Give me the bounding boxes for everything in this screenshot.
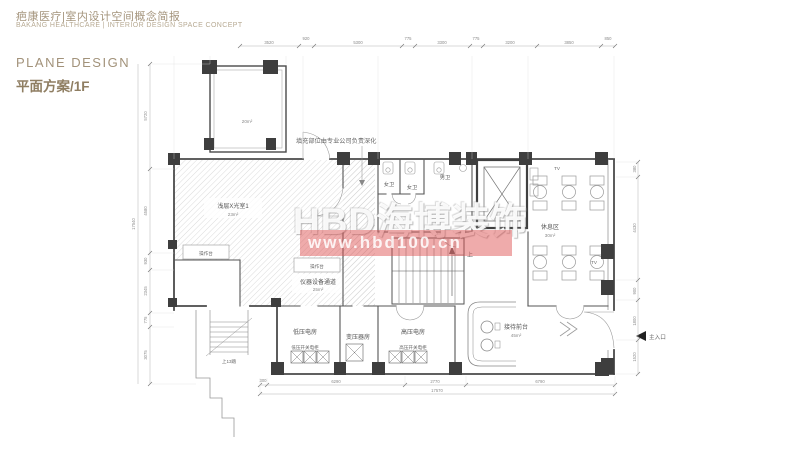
svg-text:3075: 3075: [143, 350, 148, 360]
corridor-label: 仪器设备通道: [300, 278, 336, 286]
wc-female-1-label: 女卫: [384, 180, 394, 188]
main-entrance-marker: 主入口: [636, 331, 666, 341]
slide-canvas: 填充部位由专业公司负责深化 20m² 浅层X光室1 23m² 仪器设备通道 25…: [0, 0, 800, 450]
svg-text:2770: 2770: [430, 379, 440, 384]
svg-text:920: 920: [303, 36, 311, 41]
svg-text:2345: 2345: [143, 286, 148, 296]
tower-area-label: 20m²: [242, 119, 253, 124]
section-title-en: PLANE DESIGN: [16, 55, 130, 70]
svg-text:高压开关电柜: 高压开关电柜: [399, 344, 427, 351]
svg-text:17540: 17540: [131, 218, 136, 230]
svg-text:主入口: 主入口: [649, 333, 666, 341]
watermark-url-bar: www.hbd100.cn: [300, 230, 512, 256]
svg-text:775: 775: [473, 36, 481, 41]
tv-1-label: TV: [554, 166, 561, 171]
svg-text:17570: 17570: [431, 388, 443, 393]
svg-text:1520: 1520: [632, 352, 637, 362]
svg-text:6790: 6790: [535, 379, 545, 384]
section-title-cn: 平面方案/1F: [16, 75, 90, 95]
hv-room-label: 高压电房: [401, 328, 425, 336]
exterior-staircase: [196, 310, 252, 437]
svg-text:775: 775: [143, 316, 148, 324]
wc-male-label: 男卫: [440, 174, 450, 181]
rest-area-label: 休息区: [541, 223, 559, 231]
svg-text:23m²: 23m²: [228, 212, 239, 217]
svg-text:1800: 1800: [632, 316, 637, 326]
counter-1-label: 操作台: [199, 250, 213, 257]
svg-text:5720: 5720: [143, 111, 148, 121]
presentation-title-en: BAKANG HEALTHCARE | INTERIOR DESIGN SPAC…: [16, 22, 243, 29]
counter-2-label: 操作台: [310, 263, 324, 270]
entrance-arrow-icon: [636, 331, 646, 341]
svg-text:3520: 3520: [264, 40, 274, 45]
reception-desk: [468, 302, 577, 366]
exterior-stairs-label: 上13踏: [222, 358, 237, 365]
svg-text:6290: 6290: [331, 379, 341, 384]
watermark-url: www.hbd100.cn: [300, 230, 512, 256]
svg-text:填充部位由专业公司负责深化: 填充部位由专业公司负责深化: [296, 137, 376, 145]
svg-text:低压开关电柜: 低压开关电柜: [291, 344, 319, 351]
svg-text:850: 850: [605, 36, 613, 41]
svg-text:380: 380: [632, 165, 637, 173]
direction-arrow-icon: [560, 322, 577, 336]
svg-text:900: 900: [632, 287, 637, 295]
svg-text:4430: 4430: [632, 223, 637, 233]
reception-label: 接待前台: [504, 323, 528, 331]
svg-text:3200: 3200: [505, 40, 515, 45]
wc-female-2-label: 女卫: [407, 183, 417, 191]
transformer-room-label: 变压器房: [346, 333, 370, 341]
svg-text:930: 930: [143, 257, 148, 265]
svg-text:300: 300: [260, 378, 268, 383]
svg-text:4580: 4580: [143, 206, 148, 216]
lv-room-label: 低压电房: [293, 328, 317, 336]
xray-room-label: 浅层X光室1: [217, 202, 249, 210]
svg-text:775: 775: [405, 36, 413, 41]
svg-text:25m²: 25m²: [313, 287, 324, 292]
svg-text:5300: 5300: [353, 40, 363, 45]
tv-2-label: TV: [591, 260, 598, 265]
svg-text:3850: 3850: [564, 40, 574, 45]
svg-text:45m²: 45m²: [511, 333, 522, 338]
svg-text:3300: 3300: [437, 40, 447, 45]
svg-text:30m²: 30m²: [545, 233, 556, 238]
